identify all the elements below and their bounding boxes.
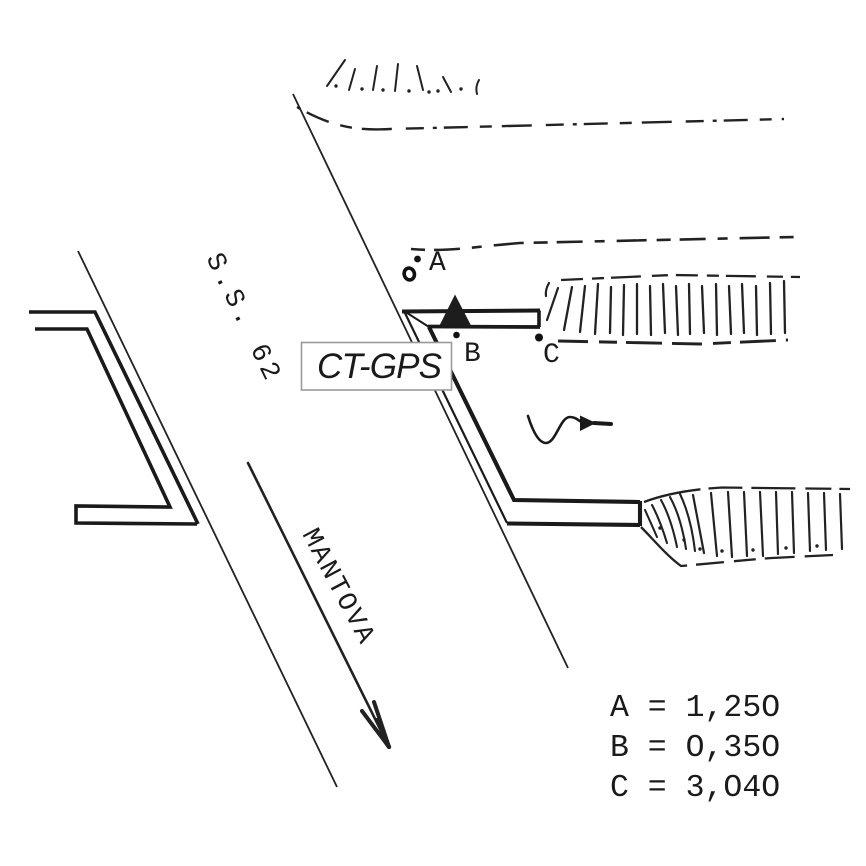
svg-text:C: C [543,340,560,371]
svg-text:A: A [429,248,446,279]
svg-text:C = 3,O4O: C = 3,O4O [610,771,780,806]
svg-text:B: B [464,339,481,370]
svg-text:A = 1,25O: A = 1,25O [610,691,780,726]
svg-text:B = O,35O: B = O,35O [610,731,780,766]
svg-text:CT-GPS: CT-GPS [317,347,442,386]
